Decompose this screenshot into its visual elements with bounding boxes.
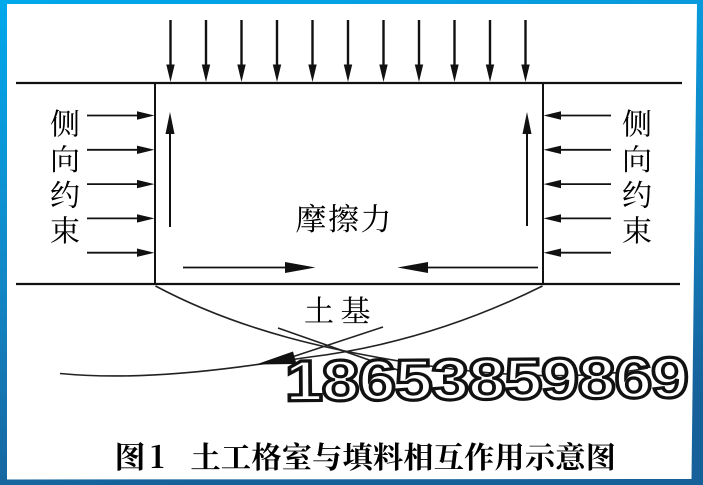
svg-text:18653859869: 18653859869 [285,346,688,414]
